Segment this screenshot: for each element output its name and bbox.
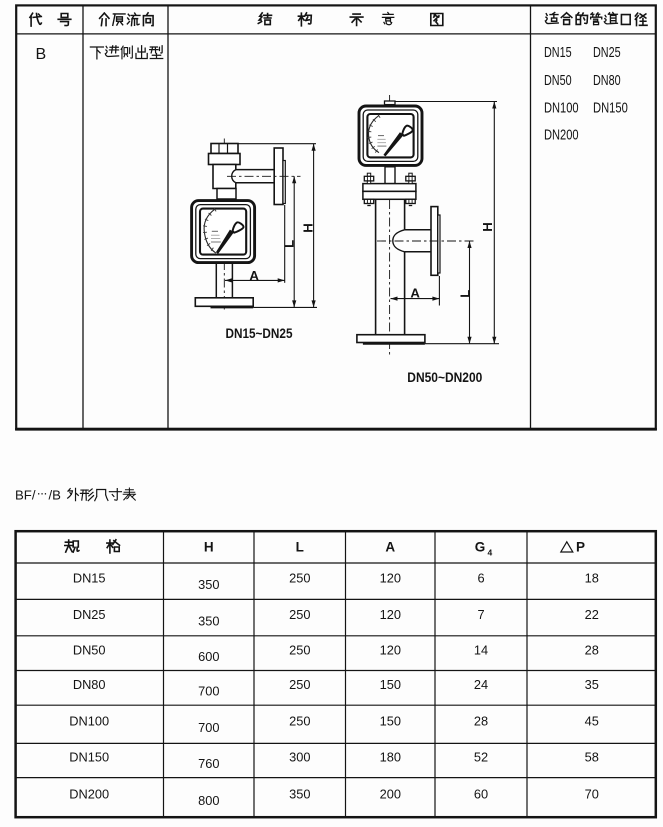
svg-text:250: 250: [289, 714, 310, 729]
svg-text:800: 800: [198, 793, 219, 808]
svg-text:120: 120: [380, 642, 401, 657]
svg-text:B: B: [35, 46, 46, 63]
svg-text:700: 700: [198, 720, 219, 735]
svg-text:6: 6: [477, 570, 484, 585]
svg-text:/B: /B: [49, 488, 62, 503]
svg-text:600: 600: [198, 649, 219, 664]
svg-text:52: 52: [474, 750, 488, 765]
svg-text:200: 200: [380, 787, 401, 802]
svg-text:760: 760: [198, 756, 219, 771]
svg-text:A: A: [249, 268, 259, 283]
svg-text:DN15: DN15: [73, 570, 106, 585]
svg-text:250: 250: [289, 642, 310, 657]
svg-text:24: 24: [474, 677, 488, 692]
svg-text:DN200: DN200: [69, 787, 109, 802]
svg-text:DN80: DN80: [73, 677, 106, 692]
svg-text:DN200: DN200: [544, 127, 579, 144]
svg-text:18: 18: [585, 570, 599, 585]
svg-text:7: 7: [477, 607, 484, 622]
svg-text:45: 45: [585, 714, 599, 729]
svg-text:H: H: [480, 222, 495, 232]
svg-text:H: H: [300, 223, 315, 233]
svg-text:DN100: DN100: [544, 99, 579, 116]
svg-text:G: G: [475, 540, 486, 555]
svg-text:350: 350: [289, 787, 310, 802]
svg-text:L: L: [458, 290, 473, 298]
svg-text:A: A: [385, 540, 395, 555]
svg-text:DN100: DN100: [69, 714, 109, 729]
svg-text:180: 180: [380, 750, 401, 765]
svg-text:P: P: [576, 540, 585, 555]
svg-text:DN25: DN25: [73, 607, 106, 622]
svg-text:BF/: BF/: [15, 488, 36, 503]
svg-text:···: ···: [37, 486, 47, 501]
svg-text:DN15~DN25: DN15~DN25: [226, 326, 293, 342]
svg-text:250: 250: [289, 677, 310, 692]
svg-text:DN25: DN25: [593, 44, 621, 61]
svg-text:35: 35: [585, 677, 599, 692]
svg-text:58: 58: [585, 750, 599, 765]
svg-text:150: 150: [380, 677, 401, 692]
svg-text:A: A: [410, 286, 420, 301]
svg-text:DN80: DN80: [593, 72, 621, 89]
svg-text:DN15: DN15: [544, 44, 572, 61]
svg-text:300: 300: [289, 750, 310, 765]
svg-text:120: 120: [380, 607, 401, 622]
svg-text:DN50: DN50: [544, 72, 572, 89]
svg-text:L: L: [282, 240, 297, 248]
svg-text:120: 120: [380, 570, 401, 585]
svg-text:350: 350: [198, 577, 219, 592]
svg-text:L: L: [296, 540, 304, 555]
svg-text:H: H: [204, 540, 214, 555]
svg-text:250: 250: [289, 607, 310, 622]
svg-text:60: 60: [474, 787, 488, 802]
svg-text:DN150: DN150: [593, 99, 628, 116]
svg-text:DN150: DN150: [69, 750, 109, 765]
svg-text:28: 28: [585, 642, 599, 657]
svg-text:4: 4: [488, 548, 493, 558]
svg-text:250: 250: [289, 570, 310, 585]
svg-text:70: 70: [585, 787, 599, 802]
svg-text:150: 150: [380, 714, 401, 729]
svg-text:28: 28: [474, 714, 488, 729]
svg-text:700: 700: [198, 684, 219, 699]
svg-text:DN50~DN200: DN50~DN200: [407, 370, 482, 386]
svg-text:22: 22: [585, 607, 599, 622]
svg-text:350: 350: [198, 613, 219, 628]
svg-text:DN50: DN50: [73, 642, 106, 657]
svg-text:14: 14: [474, 642, 488, 657]
